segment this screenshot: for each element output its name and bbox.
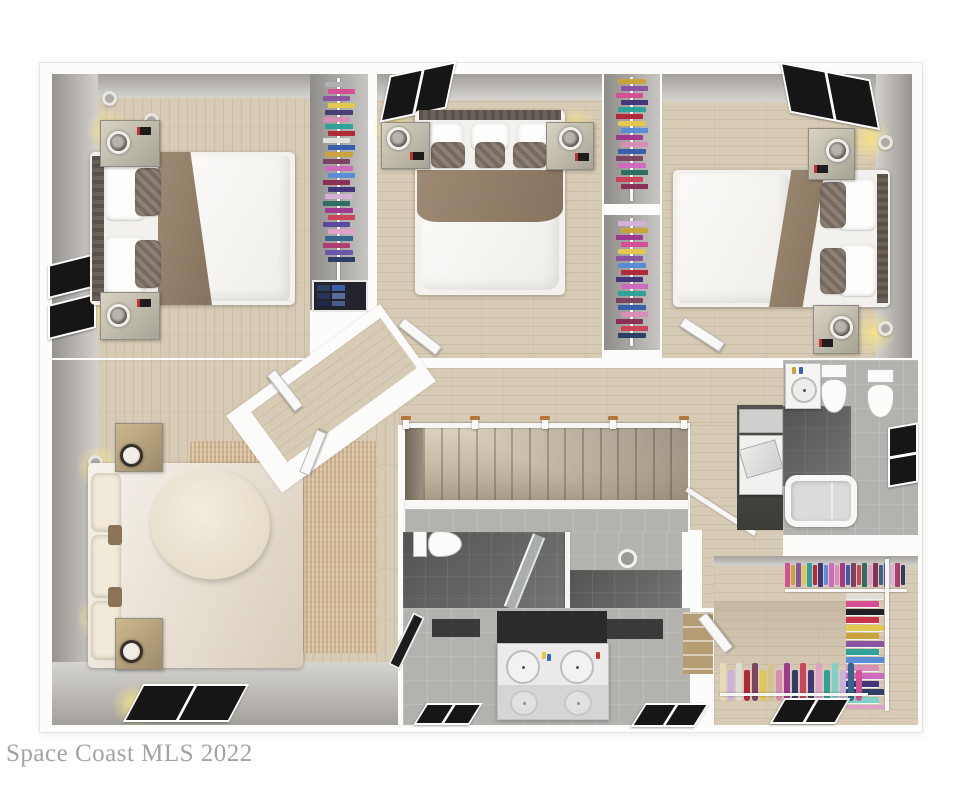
bathroom-right-window [888, 422, 918, 487]
floorplan-canvas: Space Coast MLS 2022 [0, 0, 963, 800]
sink-reflection [510, 690, 538, 716]
vanity-backsplash [497, 611, 607, 643]
accent-pillow [135, 240, 161, 288]
lamp-icon [387, 127, 410, 150]
duvet [677, 174, 789, 303]
headboard [877, 174, 888, 303]
accent-pillow [135, 168, 161, 216]
toilet [413, 531, 461, 557]
soap-bottle [799, 367, 803, 374]
ceiling-light-icon [102, 91, 117, 106]
accent-pillow [431, 142, 465, 168]
shower-drain-icon [618, 549, 637, 568]
nightstand [381, 122, 430, 169]
master-window [123, 684, 249, 722]
alarm-clock-icon [410, 152, 424, 160]
bedroom1-bed [90, 152, 295, 305]
laundry-shelf [739, 409, 783, 433]
nightstand [115, 423, 163, 472]
washer [739, 435, 783, 495]
bedroom3-bed [673, 170, 890, 307]
nightstand [100, 292, 160, 340]
bedroom2-bed [415, 110, 565, 295]
counter-dark [605, 619, 663, 639]
headboard [419, 110, 561, 120]
sink-reflection [564, 690, 592, 716]
accent-pillow [513, 142, 547, 168]
closet-clothes [323, 82, 355, 280]
ceiling-light-icon [878, 321, 893, 336]
lamp-icon [826, 139, 849, 162]
lamp-icon [830, 316, 853, 339]
soap-bottle [542, 652, 546, 659]
toilet [821, 364, 847, 412]
accent-pillow [108, 525, 122, 545]
sink-basin [791, 377, 817, 403]
lamp-icon [120, 444, 143, 467]
floorplan [40, 63, 922, 732]
nightstand [115, 618, 163, 670]
toilet-bowl [428, 531, 462, 557]
accent-pillow [108, 587, 122, 607]
soap-bottle [596, 652, 600, 659]
sink-basin [506, 650, 540, 684]
blanket [417, 170, 563, 222]
folded-clothes [314, 282, 362, 306]
ceiling-light-icon [878, 135, 893, 150]
alarm-clock-icon [137, 127, 151, 135]
nightstand [808, 128, 855, 180]
toilet-tank [413, 531, 427, 557]
closet-shelf [312, 280, 368, 312]
toilet [867, 369, 894, 417]
washer-lid [739, 439, 784, 478]
toilet-tank [867, 369, 894, 383]
alarm-clock-icon [137, 299, 151, 307]
glass-wall [565, 532, 570, 608]
toilet-tank [821, 364, 847, 378]
lamp-icon [107, 304, 130, 327]
bedroom1-top-wall [98, 74, 310, 98]
railing-post [542, 418, 548, 429]
stair-stringer [405, 500, 688, 509]
double-vanity [497, 643, 609, 720]
alarm-clock-icon [814, 165, 828, 173]
lamp-icon [120, 640, 143, 663]
shower-room-darkfloor [570, 570, 682, 608]
railing-post [681, 418, 687, 429]
soap-bottle [547, 654, 551, 661]
watermark-text: Space Coast MLS 2022 [6, 740, 253, 768]
bath-bottom-window [631, 703, 710, 727]
railing-post [403, 418, 409, 429]
bathroom-right-darkfloor [783, 406, 851, 486]
alarm-clock-icon [819, 339, 833, 347]
toilet-bowl [821, 379, 847, 413]
accent-pillow [820, 182, 846, 228]
railing-post [610, 418, 616, 429]
nightstand [813, 305, 859, 354]
staircase [423, 428, 688, 500]
lamp-icon [559, 127, 582, 150]
accent-pillow [820, 248, 846, 294]
closet-clothes [616, 221, 648, 347]
nightstand [546, 122, 594, 170]
counter-dark [432, 619, 480, 637]
soap-bottle [792, 367, 796, 374]
alarm-clock-icon [575, 153, 589, 161]
stairwell-well [405, 428, 423, 500]
closet-clothes [616, 79, 648, 199]
bathroom-sink [785, 363, 821, 409]
lamp-icon [107, 131, 130, 154]
toilet-bowl [867, 384, 894, 418]
pillow [91, 473, 121, 531]
headboard [92, 156, 104, 301]
nightstand [100, 120, 160, 167]
closet-rail [720, 693, 868, 696]
closet-pole [885, 559, 889, 711]
sink-basin [560, 650, 594, 684]
railing-post [472, 418, 478, 429]
stair-landing [405, 509, 688, 532]
bathtub [785, 475, 857, 527]
accent-pillow [475, 142, 505, 168]
